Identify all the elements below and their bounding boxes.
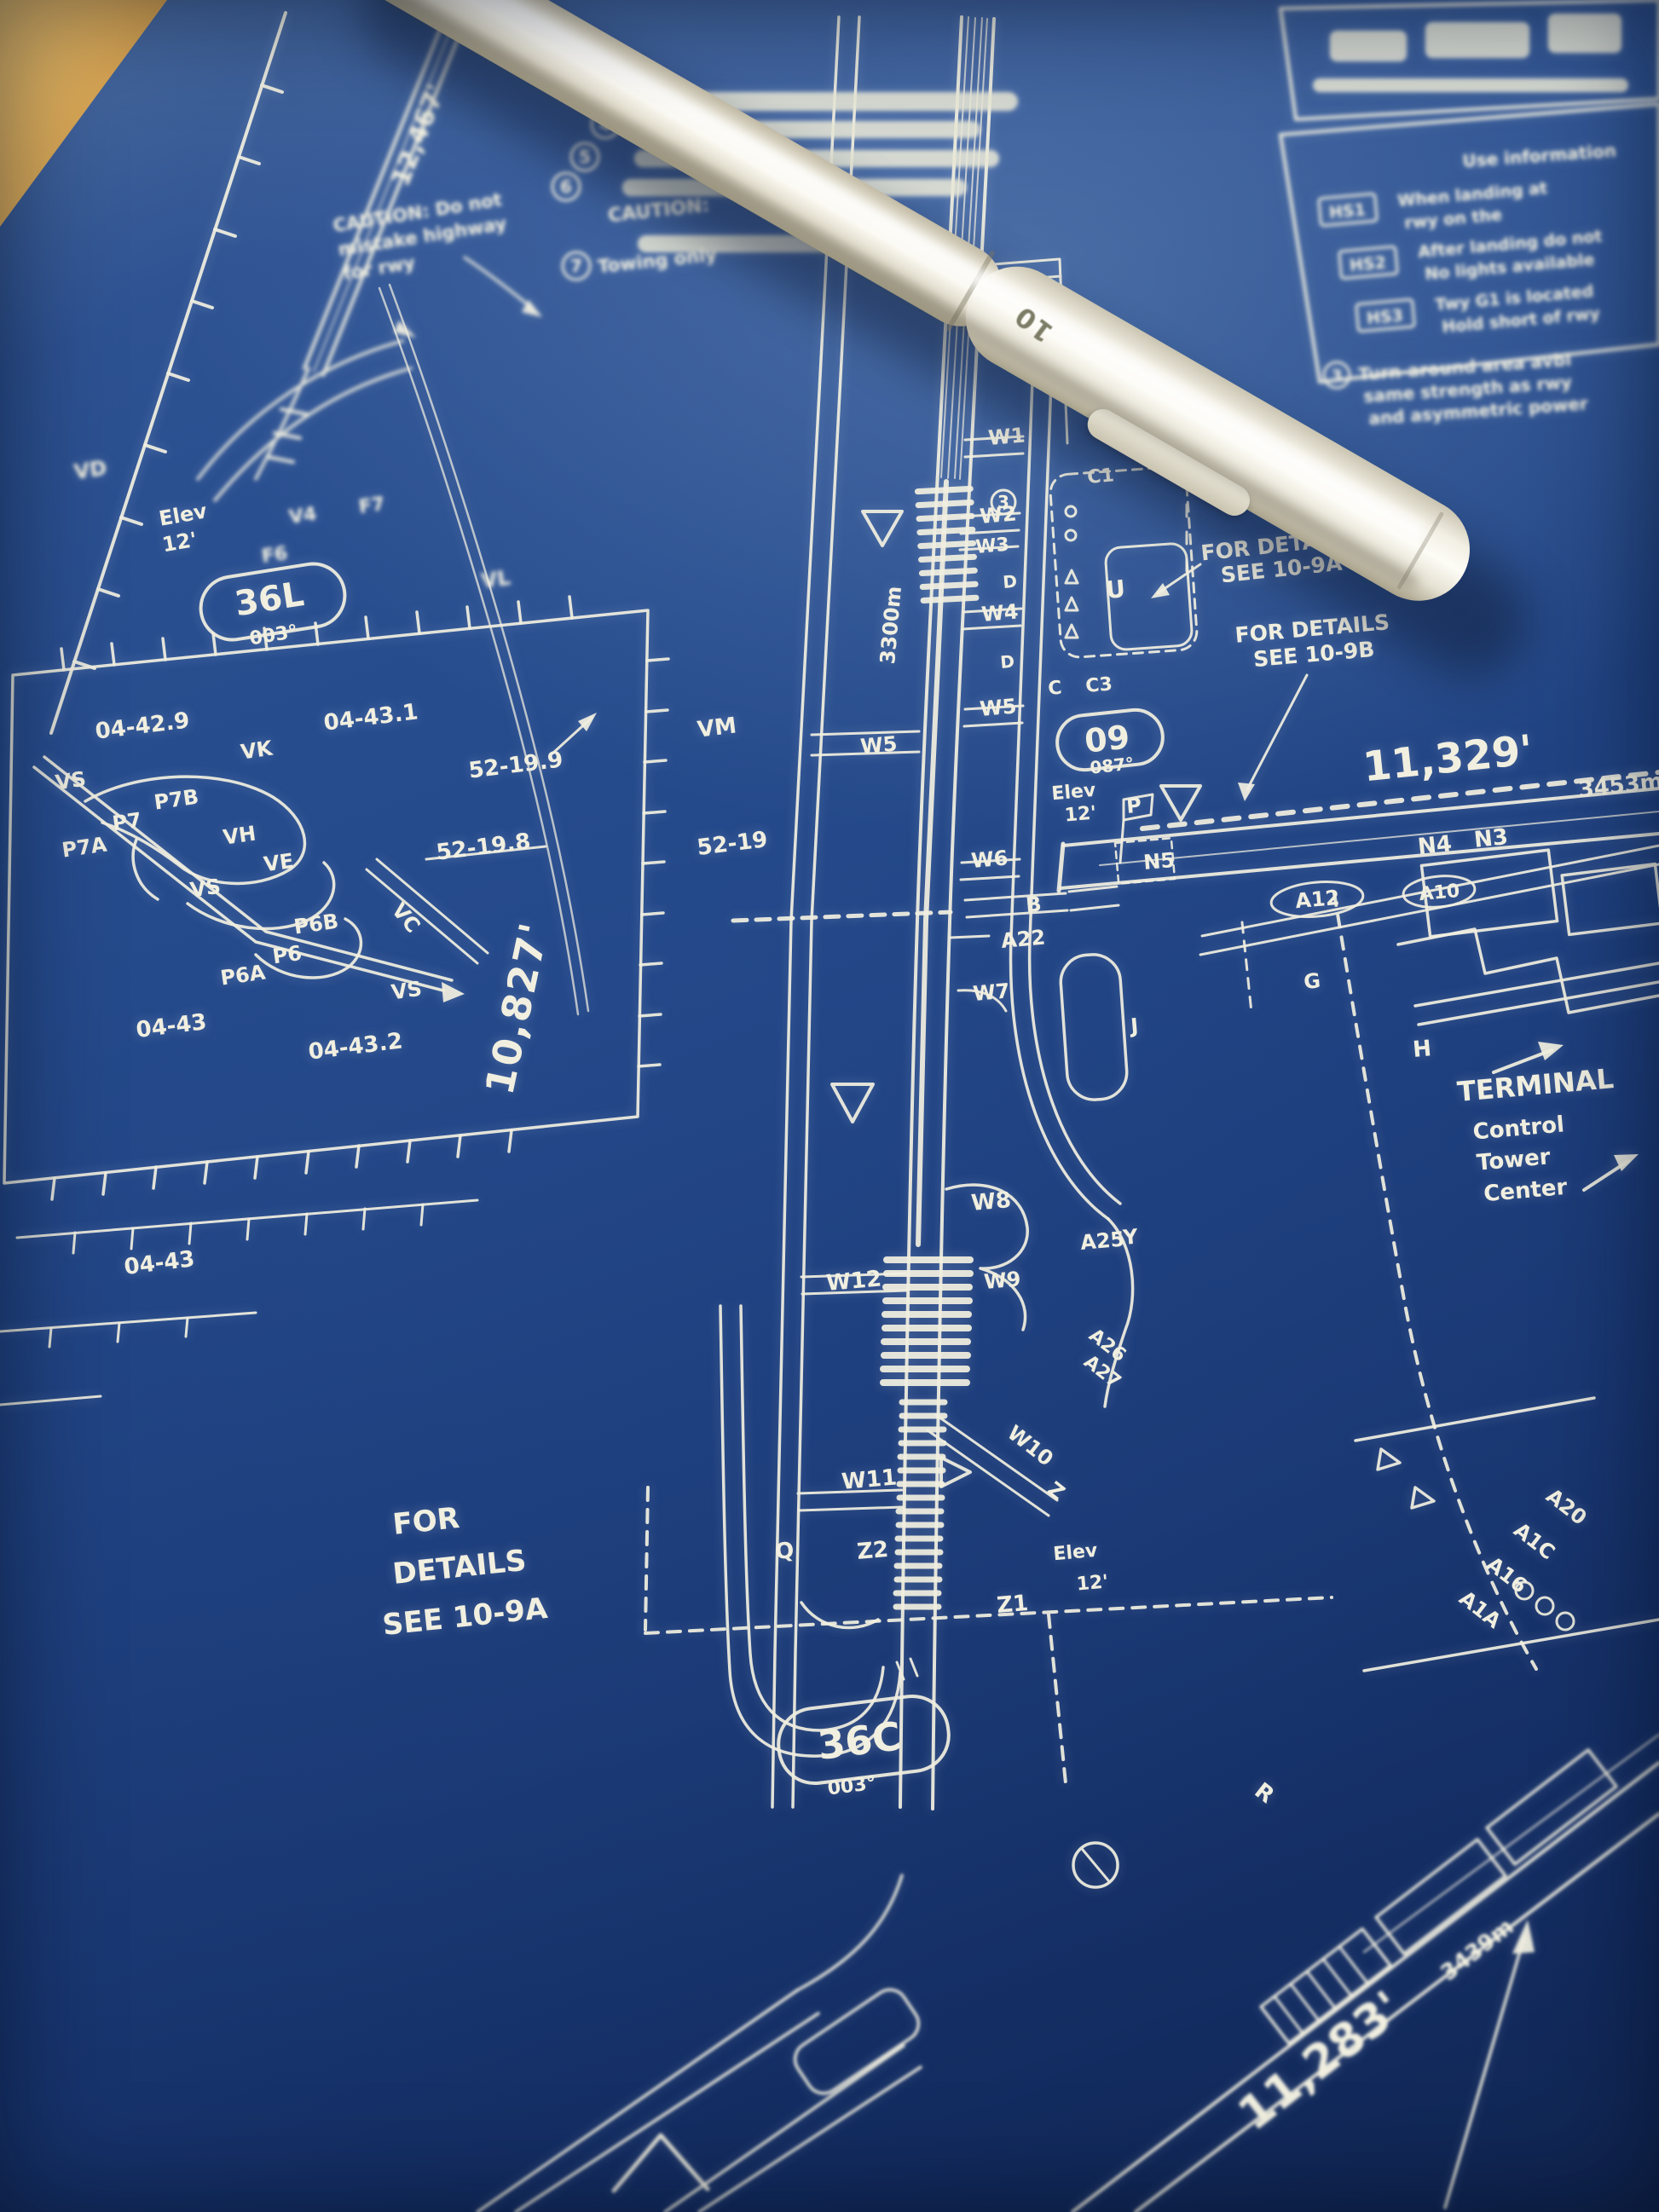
- label-taxiway-w7: W7: [972, 979, 1010, 1006]
- arrowhead: [1238, 783, 1255, 801]
- label-coord: 52-19: [696, 827, 769, 861]
- label-details-c1: FOR: [391, 1501, 461, 1542]
- label-taxiway-vk: VK: [240, 736, 275, 764]
- se-apron-stands: A20 A1C A16 A1A: [1356, 1398, 1659, 1671]
- label-hs1: HS1: [1328, 200, 1367, 222]
- circle-symbol-tick: [1083, 1850, 1108, 1880]
- glideslope-triangle: [1161, 786, 1200, 820]
- label-coord: 04-42.9: [94, 707, 191, 744]
- label-taxiway-vl: VL: [480, 565, 512, 592]
- label-rwy09-length-m: 3453m: [1577, 769, 1659, 803]
- label-taxiway-w8: W8: [970, 1187, 1012, 1216]
- label-taxiway-a25: A25: [1079, 1227, 1125, 1255]
- label-elev-word: Elev: [1051, 780, 1097, 805]
- apron-dot: [1066, 506, 1076, 517]
- west-taxiway-loop: [720, 1306, 900, 1756]
- label-rwy36l-length: 12,467': [385, 80, 451, 190]
- taxiway-line: [367, 859, 488, 963]
- label-stand-a20: A20: [1541, 1484, 1591, 1530]
- label-taxiway-c3: C3: [1084, 673, 1113, 697]
- label-taxiway-g: G: [1303, 968, 1321, 994]
- arrowhead: [1538, 1042, 1564, 1060]
- label-taxiway-z: Z: [1043, 1477, 1069, 1505]
- label-coord: 04-43: [135, 1009, 208, 1043]
- label-taxiway-b: B: [1025, 892, 1043, 916]
- label-taxiway-vs: VS: [54, 767, 87, 795]
- photo-of-blueprint: 36L 003° Elev 12' 04-42.9 04-43.1 52-19.…: [0, 0, 1659, 2212]
- label-coord: 04-43.1: [322, 699, 419, 736]
- label-coord: 04-43.2: [307, 1028, 404, 1065]
- threshold-bar: [1059, 844, 1063, 891]
- chevron-symbol: [614, 2135, 708, 2191]
- label-taxiway-w5: W5: [859, 731, 898, 759]
- label-rwy36c-heading: 003°: [826, 1773, 877, 1800]
- label-taxiway-w12: W12: [825, 1266, 882, 1297]
- label-hotspot-header: Use information: [1462, 140, 1617, 171]
- caution-highway-note: CAUTION: Do not mistake highway for rwy: [332, 189, 542, 317]
- label-taxiway-q: Q: [774, 1538, 795, 1565]
- edge-line: [0, 1396, 101, 1405]
- label-hs1-l2: rwy on the: [1404, 205, 1503, 233]
- apron-stand: [1059, 953, 1129, 1101]
- label-taxiway-h: H: [1412, 1036, 1432, 1063]
- label-control: Control: [1471, 1112, 1565, 1145]
- label-taxiway-vm: VM: [696, 713, 737, 742]
- taxiway-line: [1069, 887, 1119, 910]
- label-taxiway-ve: VE: [263, 849, 296, 877]
- label-elev-val: 12': [160, 528, 199, 557]
- label-taxiway-p6: P6: [271, 941, 303, 969]
- chart-bottom-zone: 11,283' 3439m: [477, 1735, 1659, 2212]
- graticule-meridian: [51, 13, 286, 733]
- label-coord: 52-19.9: [467, 747, 564, 783]
- label-taxiway-u: U: [1105, 575, 1127, 604]
- label-taxiway-a22: A22: [1000, 926, 1046, 953]
- label-taxiway-z2: Z2: [856, 1537, 889, 1565]
- blurred-text-block: [1330, 31, 1407, 61]
- blueprint-airport-diagram: 36L 003° Elev 12' 04-42.9 04-43.1 52-19.…: [0, 0, 1659, 2212]
- label-elev-val: 12': [1076, 1571, 1109, 1595]
- label-taxiway-y: Y: [1121, 1225, 1139, 1250]
- label-rwy36c-length: 10,827': [477, 918, 558, 1099]
- apron-stand: [789, 1984, 925, 2100]
- threshold-triangle: [863, 511, 902, 546]
- arrowhead: [1151, 583, 1170, 598]
- label-rwy36c: 36C: [815, 1712, 904, 1769]
- taxiway-curve: [797, 1875, 902, 1990]
- label-taxiway-d: D: [999, 651, 1015, 673]
- label-taxiway-f7: F7: [357, 494, 386, 518]
- taxiway-line: [720, 1306, 900, 1756]
- label-elev-word: Elev: [157, 499, 209, 530]
- blurred-text-block: [1425, 22, 1529, 58]
- inset-taxiway-cluster: VS P7B P7 P7A VK VH VE VS P6B P6 P6A VS …: [34, 736, 488, 1004]
- label-taxiway-j: J: [1128, 1014, 1139, 1038]
- label-rwy09-length: 11,329': [1361, 726, 1535, 792]
- label-coord: 52-19.8: [435, 829, 532, 865]
- label-taxiway-w2: W2: [979, 501, 1017, 528]
- label-details-c2: DETAILS: [391, 1544, 528, 1591]
- label-taxiway-r: R: [1250, 1778, 1279, 1809]
- blurred-text-line: [1313, 78, 1628, 92]
- label-taxiway-w1: W1: [987, 423, 1026, 450]
- parallel-line: [1364, 1735, 1659, 1952]
- runway-36l-ident: 36L 003°: [196, 559, 349, 650]
- hotspot-box: Use information HS1 When landing at rwy …: [1280, 104, 1659, 382]
- label-taxiway-p7b: P7B: [153, 785, 200, 815]
- threshold-hatch-wide: [883, 1260, 970, 1383]
- apron-triangles: [1066, 570, 1078, 638]
- runway-edge: [1072, 1763, 1659, 2212]
- blurred-text-block: [1548, 14, 1621, 53]
- dashed-taxiway: [1242, 922, 1251, 1013]
- threshold-triangle: [832, 1084, 873, 1122]
- label-note7-num: 7: [570, 256, 582, 276]
- flag-pole: [1120, 820, 1124, 863]
- inset-outline: [4, 610, 648, 1183]
- label-taxiway-p6b: P6B: [292, 910, 340, 939]
- label-taxiway-c: C: [1047, 678, 1062, 700]
- north-taxiway-area: N5 N4 N3 A12 A10 G H: [1069, 824, 1659, 1669]
- label-note3-num: 3: [1331, 367, 1342, 385]
- label-taxiway-d: D: [1002, 571, 1018, 592]
- blastpad-hatch-top: [917, 488, 976, 600]
- taxiway-line: [741, 1306, 883, 1730]
- note-3: 3 Turn-around area avbl same strength as…: [1324, 349, 1589, 429]
- inset-right-ticks: [639, 659, 668, 1066]
- bottom-taxiways: [477, 1875, 925, 2212]
- graticule-ticks: [74, 85, 282, 668]
- label-stand-a16: A16: [1482, 1552, 1531, 1598]
- label-parking-p: P: [1125, 794, 1142, 818]
- label-taxiway-f6: F6: [260, 543, 289, 568]
- label-taxiway-p6a: P6A: [219, 960, 268, 990]
- label-hs1-l1: When landing at: [1397, 179, 1548, 211]
- info-box-upper: [1280, 0, 1659, 119]
- label-taxiway-vc: VC: [387, 898, 425, 938]
- leader-line: [1247, 675, 1307, 789]
- label-taxiway-n4: N4: [1417, 831, 1454, 860]
- stand-circle: [1557, 1613, 1574, 1630]
- runway-centerline: [1100, 811, 1659, 865]
- label-details-c3: SEE 10-9A: [381, 1591, 550, 1643]
- arrowhead: [442, 982, 465, 1002]
- label-taxiway-w11: W11: [841, 1464, 898, 1495]
- graticule-ticks: [49, 1318, 188, 1347]
- stand-circle: [1536, 1597, 1553, 1614]
- label-stand-a1c: A1C: [1509, 1518, 1559, 1565]
- label-hs2: HS2: [1349, 253, 1387, 275]
- label-tower: Tower: [1476, 1144, 1552, 1175]
- taxiway-line: [34, 757, 452, 990]
- label-center: Center: [1483, 1175, 1569, 1207]
- graticule-line: [0, 1313, 256, 1331]
- label-taxiway-w9: W9: [983, 1267, 1021, 1294]
- label-coord: 04-43: [123, 1246, 196, 1280]
- label-taxiway-vs: VS: [390, 977, 423, 1005]
- label-rwy36c-length-m: 3300m: [876, 585, 906, 665]
- label-taxiway-vd: VD: [72, 456, 108, 484]
- graticule-lower-left: [0, 1200, 477, 1347]
- label-taxiway-n5: N5: [1142, 848, 1176, 875]
- label-taxiway-vh: VH: [222, 822, 257, 850]
- apron-edge: [1356, 1398, 1659, 1671]
- apron-dot: [1066, 530, 1076, 540]
- label-taxiway-w5: W5: [979, 694, 1017, 721]
- label-elev-val: 12': [1064, 802, 1097, 826]
- label-terminal: TERMINAL: [1456, 1062, 1616, 1108]
- label-rwy-diag-length: 11,283': [1228, 1980, 1413, 2140]
- label-taxiway-w10: W10: [1003, 1421, 1057, 1471]
- terminal-labels: TERMINAL Control Tower Center: [1456, 1042, 1639, 1207]
- runway-diagonal-southeast: 11,283' 3439m: [1072, 1735, 1659, 2212]
- label-taxiway-w6: W6: [970, 846, 1009, 873]
- arrow-line: [465, 257, 533, 309]
- label-taxiway-v4: V4: [287, 504, 318, 528]
- label-taxiway-w4: W4: [980, 599, 1019, 627]
- terminal-pier: [1415, 963, 1659, 1025]
- threshold-triangle: [941, 1458, 970, 1487]
- label-taxiway-vs: VS: [188, 875, 222, 903]
- inset-bottom-ticks: [52, 1130, 512, 1199]
- label-note6-num: 6: [560, 176, 572, 197]
- label-rwy09-heading: 087°: [1089, 753, 1135, 777]
- label-taxiway-w3: W3: [974, 534, 1010, 558]
- label-elev-word: Elev: [1053, 1540, 1099, 1565]
- label-hs3: HS3: [1366, 306, 1404, 328]
- label-taxiway-n3: N3: [1473, 824, 1510, 853]
- label-taxiway-p7a: P7A: [61, 832, 109, 862]
- label-rwy36l: 36L: [232, 575, 306, 624]
- stand-arrows: [1378, 1449, 1434, 1508]
- label-taxiway-p7: P7: [111, 808, 143, 836]
